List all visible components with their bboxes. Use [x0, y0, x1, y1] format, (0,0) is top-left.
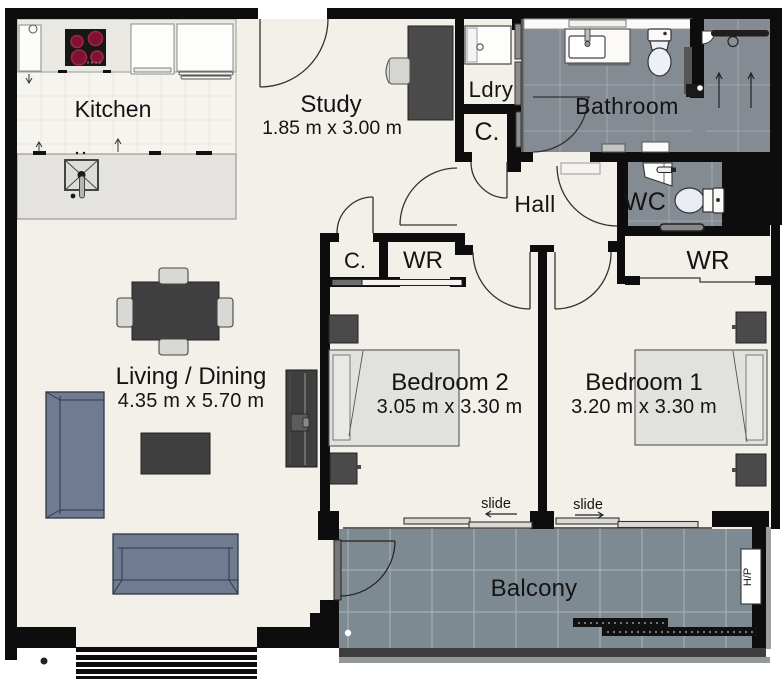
svg-text:WR: WR	[686, 245, 729, 275]
svg-text:Living / Dining: Living / Dining	[116, 363, 267, 390]
svg-text:Ldry: Ldry	[469, 77, 514, 102]
svg-text:C.: C.	[475, 118, 500, 146]
svg-text:3.05 m x 3.30 m: 3.05 m x 3.30 m	[377, 396, 523, 418]
svg-text:slide: slide	[481, 496, 511, 512]
svg-text:4.35 m x 5.70 m: 4.35 m x 5.70 m	[118, 390, 264, 412]
svg-text:Study: Study	[300, 91, 361, 118]
svg-text:H/P: H/P	[742, 568, 754, 586]
svg-text:1.85 m x 3.00 m: 1.85 m x 3.00 m	[262, 117, 402, 139]
svg-text:WC: WC	[624, 188, 666, 216]
svg-text:WR: WR	[403, 247, 443, 274]
svg-text:Kitchen: Kitchen	[75, 96, 152, 122]
svg-text:3.20 m x 3.30 m: 3.20 m x 3.30 m	[571, 396, 717, 418]
svg-text:slide: slide	[573, 497, 603, 513]
svg-text:Bathroom: Bathroom	[575, 93, 679, 119]
svg-text:Bedroom 1: Bedroom 1	[585, 369, 702, 396]
svg-text:Bedroom 2: Bedroom 2	[391, 369, 508, 396]
svg-text:C.: C.	[344, 248, 366, 273]
svg-text:Hall: Hall	[514, 191, 555, 217]
svg-text:Balcony: Balcony	[491, 575, 578, 602]
